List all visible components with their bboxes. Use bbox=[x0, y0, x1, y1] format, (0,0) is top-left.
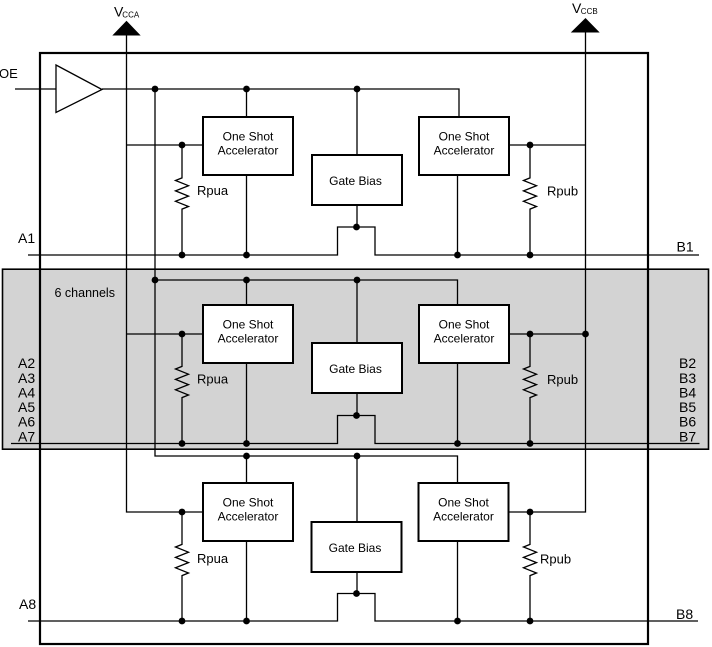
svg-text:Rpub: Rpub bbox=[547, 372, 578, 387]
svg-text:B5: B5 bbox=[679, 399, 696, 415]
svg-text:A8: A8 bbox=[19, 596, 36, 612]
svg-text:One Shot: One Shot bbox=[223, 130, 274, 144]
svg-text:Gate Bias: Gate Bias bbox=[329, 174, 382, 188]
svg-text:A1: A1 bbox=[18, 230, 35, 246]
svg-text:CCB: CCB bbox=[581, 7, 598, 16]
svg-text:One Shot: One Shot bbox=[439, 318, 490, 332]
svg-text:CCA: CCA bbox=[122, 10, 140, 19]
svg-text:B8: B8 bbox=[676, 606, 693, 622]
svg-text:Accelerator: Accelerator bbox=[218, 510, 279, 524]
svg-text:Accelerator: Accelerator bbox=[433, 510, 494, 524]
svg-text:A5: A5 bbox=[18, 399, 35, 415]
svg-text:Accelerator: Accelerator bbox=[218, 332, 279, 346]
svg-text:Rpub: Rpub bbox=[547, 184, 578, 199]
svg-text:Rpub: Rpub bbox=[540, 552, 571, 567]
svg-text:One Shot: One Shot bbox=[439, 130, 490, 144]
svg-text:Accelerator: Accelerator bbox=[434, 332, 495, 346]
svg-text:A7: A7 bbox=[18, 428, 35, 444]
svg-text:B3: B3 bbox=[679, 370, 696, 386]
svg-text:One Shot: One Shot bbox=[438, 496, 489, 510]
svg-text:B4: B4 bbox=[679, 384, 696, 400]
svg-text:Rpua: Rpua bbox=[197, 183, 229, 198]
svg-text:Rpua: Rpua bbox=[197, 372, 229, 387]
svg-text:A6: A6 bbox=[18, 414, 35, 430]
svg-text:6 channels: 6 channels bbox=[55, 286, 115, 300]
svg-text:One Shot: One Shot bbox=[223, 496, 274, 510]
svg-text:One Shot: One Shot bbox=[223, 318, 274, 332]
svg-text:Gate Bias: Gate Bias bbox=[329, 541, 382, 555]
svg-text:B7: B7 bbox=[679, 428, 696, 444]
svg-text:B1: B1 bbox=[677, 238, 694, 254]
svg-text:Accelerator: Accelerator bbox=[434, 144, 495, 158]
svg-text:A2: A2 bbox=[18, 355, 35, 371]
svg-text:A4: A4 bbox=[18, 384, 35, 400]
svg-text:B2: B2 bbox=[679, 355, 696, 371]
svg-text:Gate Bias: Gate Bias bbox=[329, 362, 382, 376]
svg-text:Accelerator: Accelerator bbox=[218, 144, 279, 158]
svg-text:OE: OE bbox=[0, 66, 18, 81]
svg-text:A3: A3 bbox=[18, 370, 35, 386]
svg-text:B6: B6 bbox=[679, 414, 696, 430]
svg-text:Rpua: Rpua bbox=[197, 551, 229, 566]
